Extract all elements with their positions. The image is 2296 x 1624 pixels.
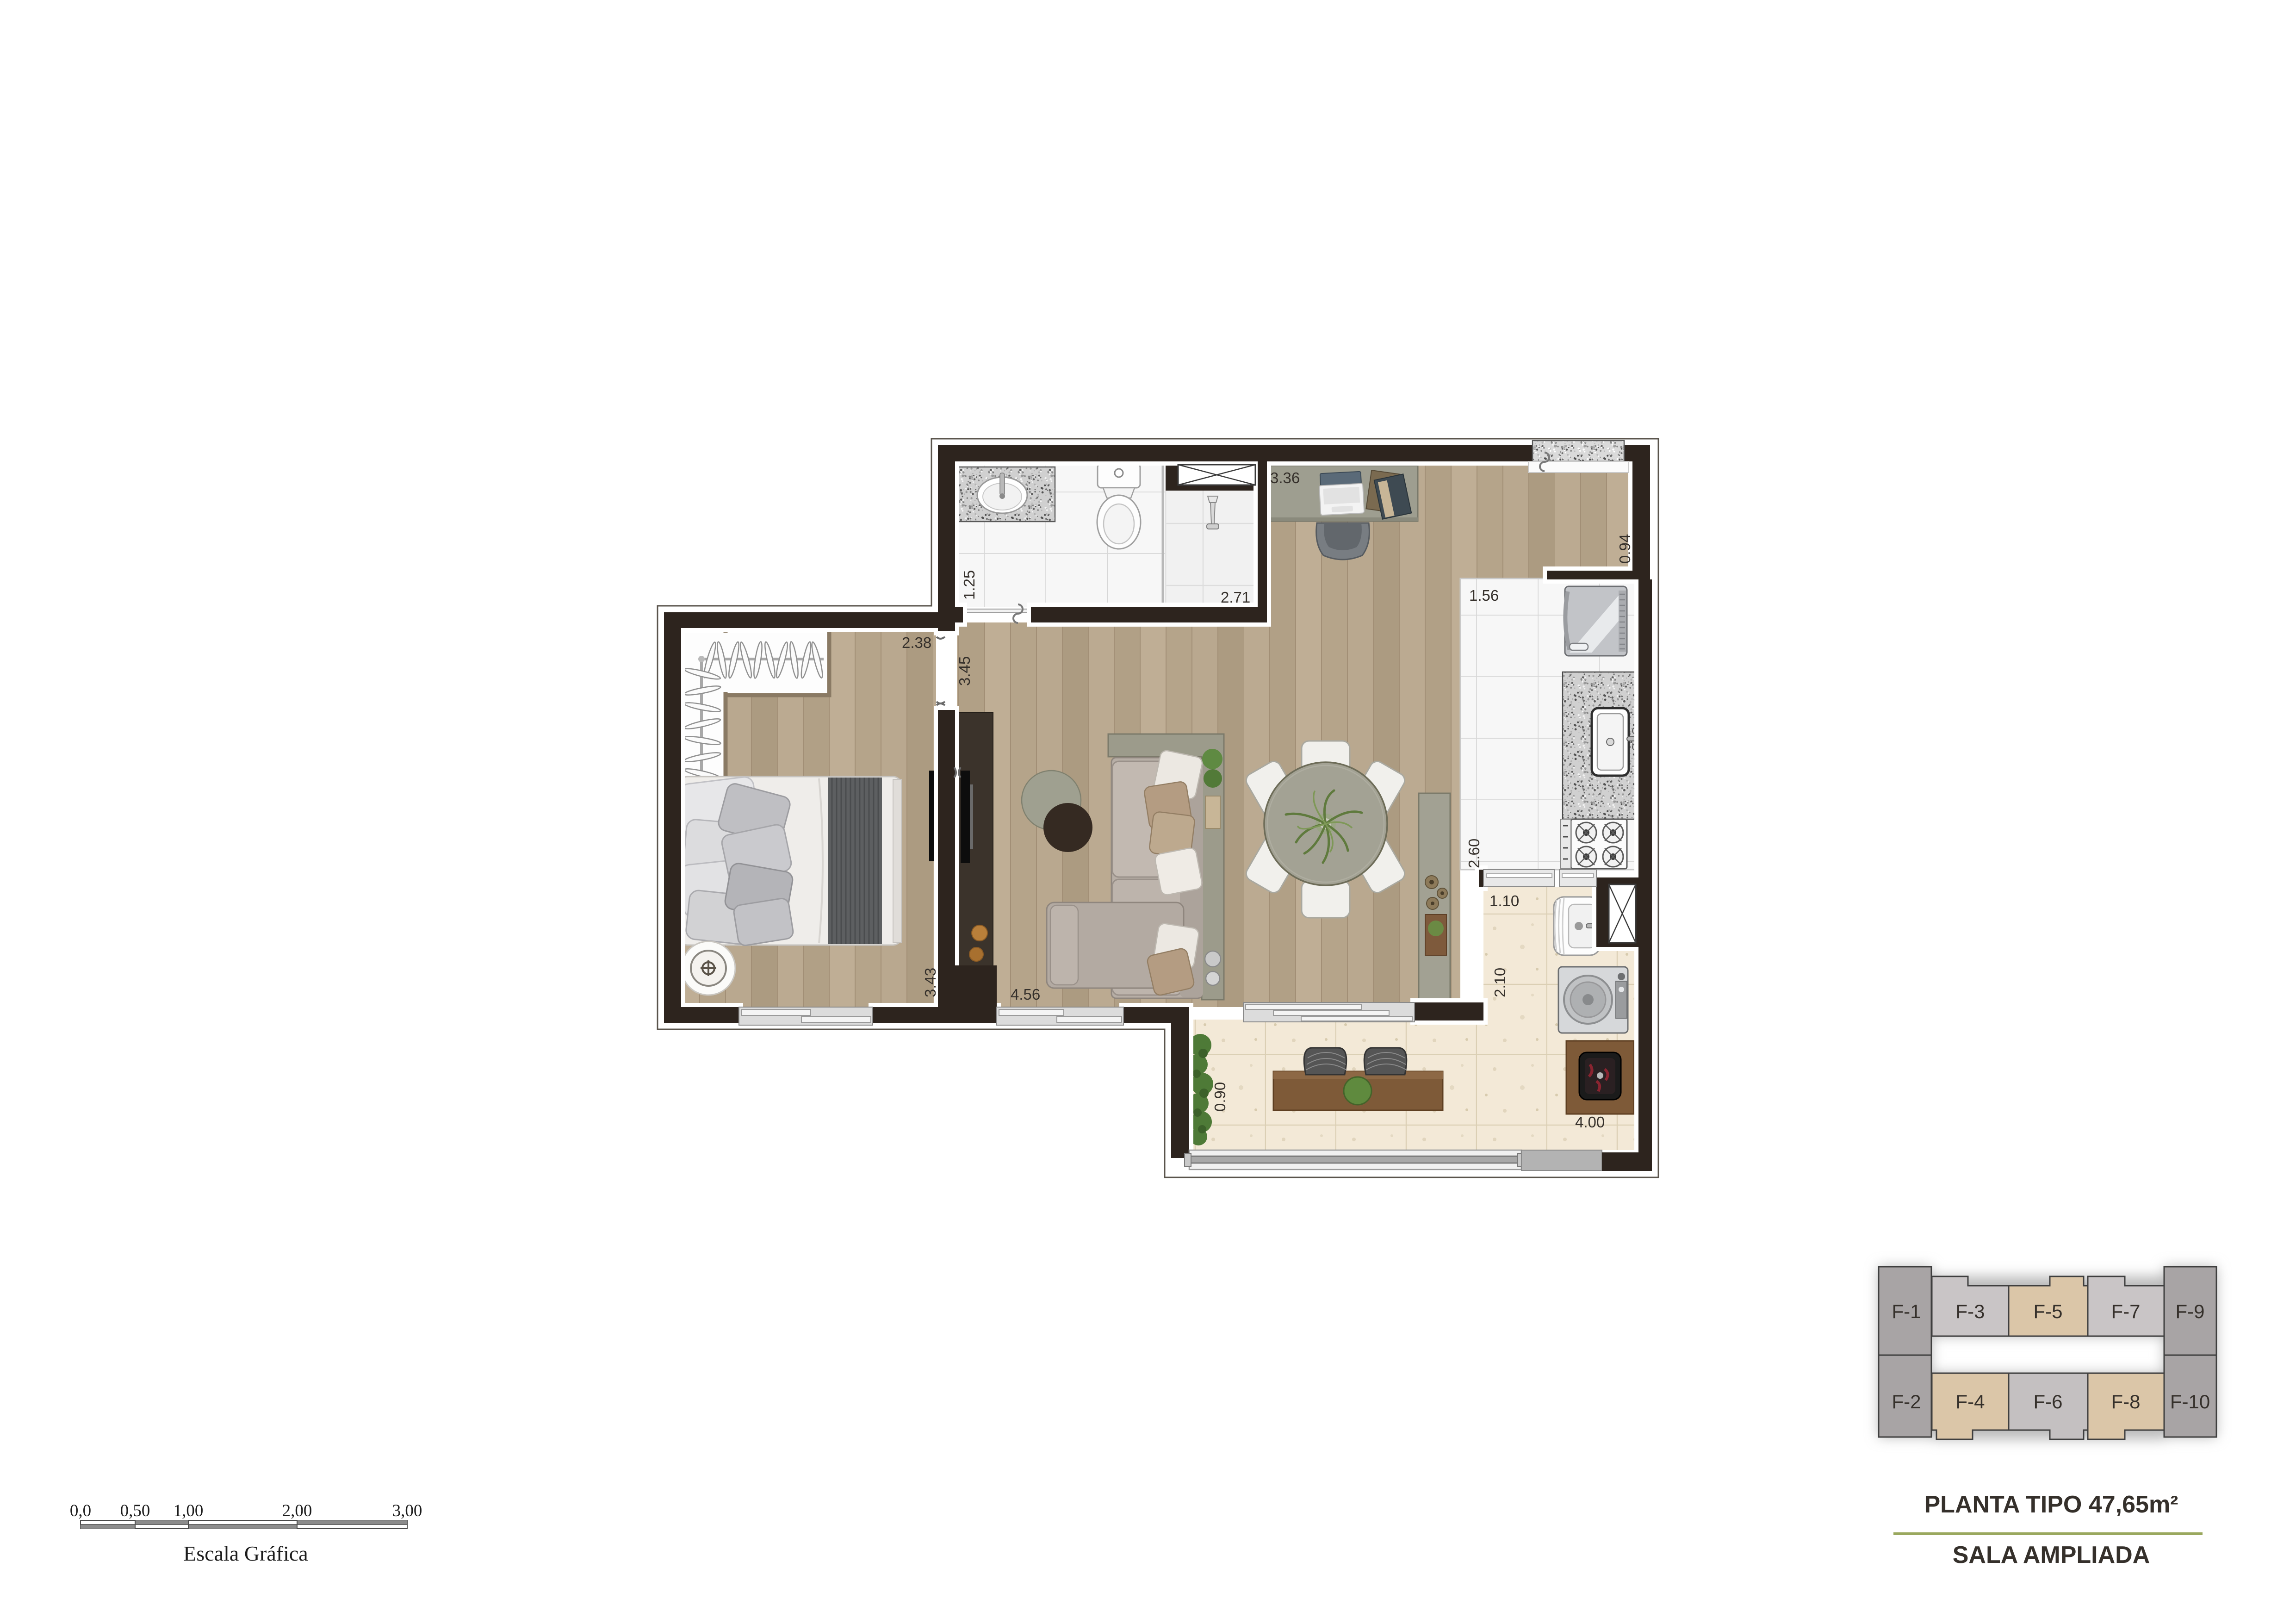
svg-text:3,00: 3,00: [392, 1501, 422, 1520]
svg-text:F-9: F-9: [2176, 1300, 2205, 1322]
svg-text:F-6: F-6: [2034, 1391, 2063, 1412]
svg-text:1.25: 1.25: [961, 570, 978, 600]
svg-text:3.45: 3.45: [956, 656, 973, 686]
svg-text:0,50: 0,50: [120, 1501, 150, 1520]
svg-text:1.56: 1.56: [1469, 587, 1499, 604]
svg-text:2,00: 2,00: [282, 1501, 312, 1520]
svg-text:2.10: 2.10: [1491, 968, 1508, 997]
svg-text:SALA AMPLIADA: SALA AMPLIADA: [1953, 1542, 2150, 1568]
svg-text:2.38: 2.38: [902, 634, 931, 651]
svg-text:Escala Gráfica: Escala Gráfica: [183, 1542, 308, 1565]
svg-text:F-10: F-10: [2170, 1391, 2210, 1412]
svg-text:F-1: F-1: [1892, 1300, 1921, 1322]
svg-text:1.10: 1.10: [1489, 892, 1519, 909]
svg-text:4.56: 4.56: [1011, 986, 1040, 1003]
svg-text:F-4: F-4: [1956, 1391, 1985, 1412]
svg-text:4.00: 4.00: [1575, 1114, 1605, 1131]
svg-text:F-7: F-7: [2111, 1300, 2141, 1322]
svg-text:PLANTA TIPO 47,65m²: PLANTA TIPO 47,65m²: [1924, 1491, 2178, 1518]
svg-text:2.60: 2.60: [1465, 839, 1483, 868]
svg-text:1,00: 1,00: [174, 1501, 204, 1520]
svg-text:F-8: F-8: [2111, 1391, 2141, 1412]
svg-text:F-2: F-2: [1892, 1391, 1921, 1412]
svg-text:0.90: 0.90: [1211, 1082, 1229, 1112]
svg-text:3.36: 3.36: [1270, 469, 1300, 486]
svg-text:2.71: 2.71: [1221, 589, 1250, 606]
svg-text:0,0: 0,0: [70, 1501, 91, 1520]
svg-text:3.43: 3.43: [922, 968, 939, 997]
svg-text:0.94: 0.94: [1616, 534, 1633, 564]
svg-text:F-3: F-3: [1956, 1300, 1985, 1322]
svg-text:F-5: F-5: [2034, 1300, 2063, 1322]
